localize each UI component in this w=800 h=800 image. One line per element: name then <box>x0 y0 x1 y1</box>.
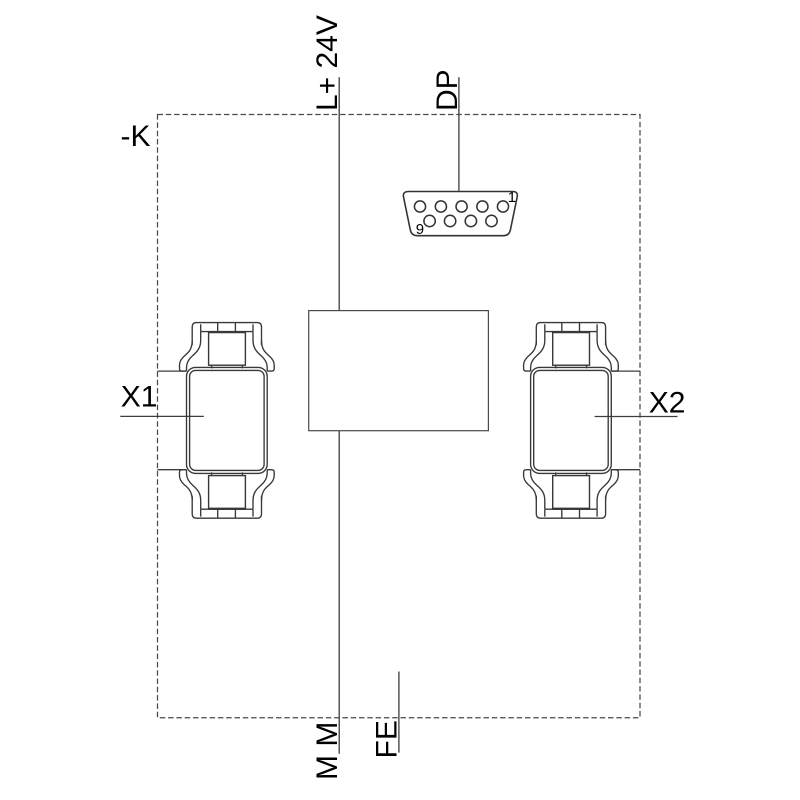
svg-text:X2: X2 <box>649 387 686 420</box>
svg-text:X1: X1 <box>121 380 158 413</box>
svg-text:-K: -K <box>121 120 151 153</box>
svg-text:DP: DP <box>431 69 464 111</box>
svg-text:1: 1 <box>508 189 516 206</box>
svg-text:L+ 24V: L+ 24V <box>311 15 344 111</box>
svg-text:9: 9 <box>416 221 424 238</box>
svg-text:M M: M M <box>311 722 344 780</box>
svg-text:FE: FE <box>371 720 404 758</box>
